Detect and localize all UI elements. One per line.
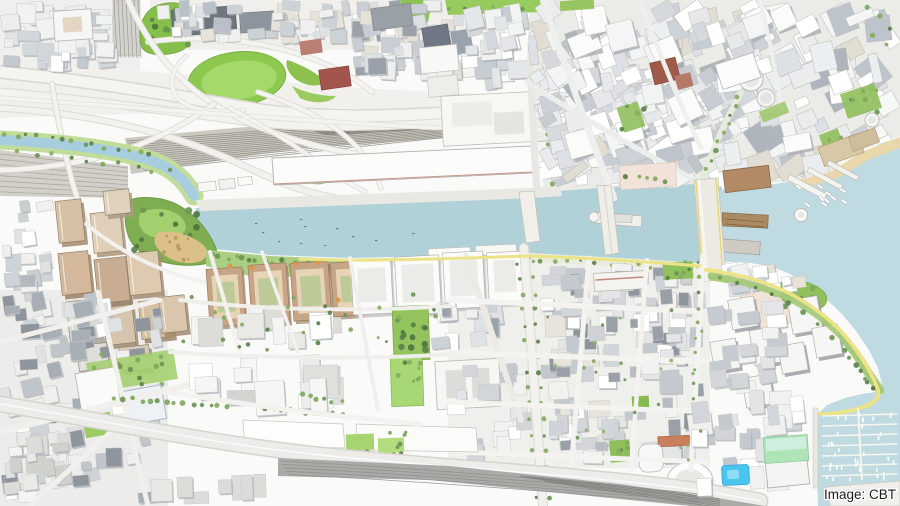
svg-text:Image: CBT: Image: CBT xyxy=(824,487,896,502)
